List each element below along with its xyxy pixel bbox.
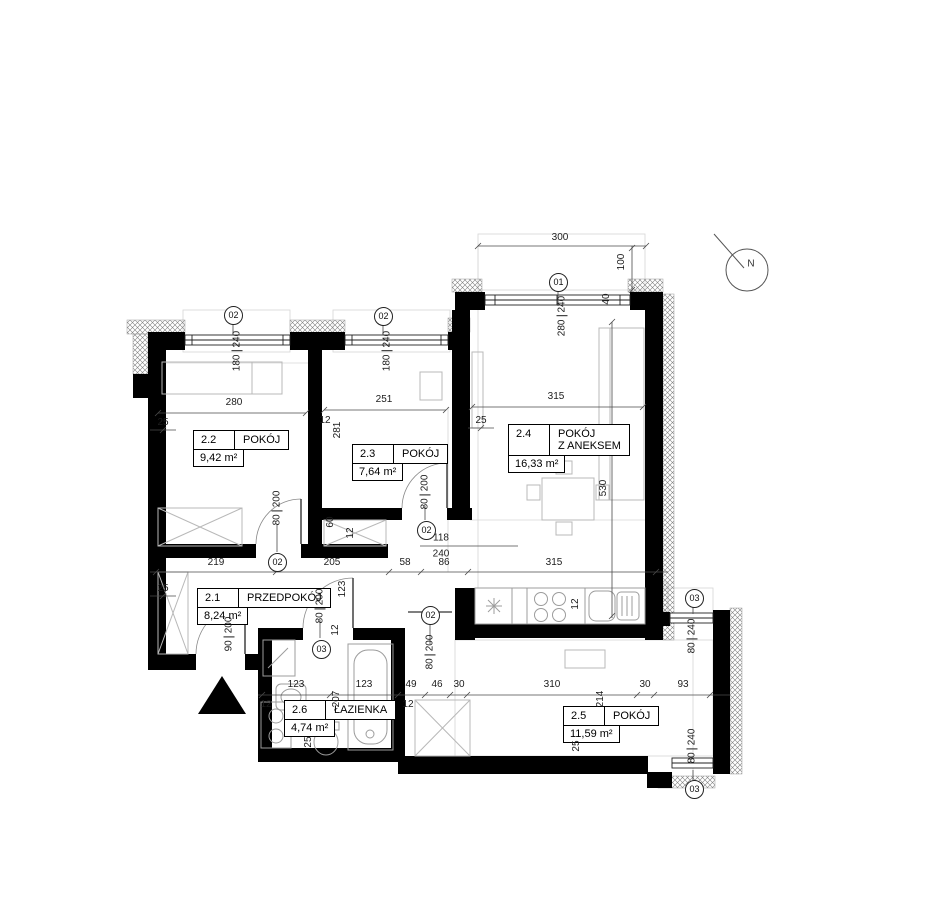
dim-60: 60 <box>326 516 336 527</box>
room-area: 9,42 m² <box>193 450 244 467</box>
dim-281: 281 <box>333 422 343 439</box>
opening-width: 180 <box>232 355 242 372</box>
wardrobe-room-2-5 <box>415 700 470 756</box>
dim-530: 530 <box>599 480 609 497</box>
window-marker-01: 01 <box>549 273 568 292</box>
wardrobe-room-2-2 <box>158 508 242 546</box>
dim-207: 207 <box>332 691 342 708</box>
dim-123: 123 <box>288 680 305 690</box>
dim-219: 219 <box>208 558 225 568</box>
room-number: 2.1 <box>198 589 239 607</box>
room-label-2-3: 2.3POKÓJ 7,64 m² <box>352 444 448 481</box>
room-number: 2.2 <box>194 431 235 449</box>
door-marker-02: 02 <box>421 606 440 625</box>
north-arrow-icon <box>714 234 768 291</box>
room-name: POKÓJ <box>605 707 658 725</box>
floorplan-page: 2.2POKÓJ 9,42 m² 2.3POKÓJ 7,64 m² 2.4 PO… <box>0 0 940 906</box>
dim-12: 12 <box>402 700 413 710</box>
dim-12: 12 <box>260 700 271 710</box>
dim-93: 93 <box>677 680 688 690</box>
door-marker-02: 02 <box>268 553 287 572</box>
door-size-80-200: 80200 <box>272 491 283 526</box>
window-size-80-240: 80240 <box>687 729 698 764</box>
dim-12: 12 <box>319 416 330 426</box>
window-size-280-240: 280240 <box>557 296 568 336</box>
room-area: 16,33 m² <box>508 456 565 473</box>
opening-width: 180 <box>382 355 392 372</box>
room-name: POKÓJZ ANEKSEM <box>550 425 629 455</box>
dim-280: 280 <box>226 398 243 408</box>
window-size-80-240: 80240 <box>687 619 698 654</box>
dim-46: 46 <box>431 680 442 690</box>
opening-width: 80 <box>687 752 697 763</box>
opening-width: 80 <box>315 612 325 623</box>
entrance-triangle <box>198 676 246 714</box>
room-name: POKÓJ <box>235 431 288 449</box>
opening-width: 80 <box>425 658 435 669</box>
opening-height: 240 <box>232 331 242 348</box>
dim-214: 214 <box>596 691 606 708</box>
door-size-90-200: 90200 <box>224 617 235 652</box>
dim-25: 25 <box>475 416 486 426</box>
room-label-2-4: 2.4 POKÓJZ ANEKSEM 16,33 m² <box>508 424 630 473</box>
room-name: POKÓJ <box>394 445 447 463</box>
dim-251: 251 <box>376 395 393 405</box>
door-size-80-200: 80200 <box>420 475 431 510</box>
desk-room-2-3 <box>420 372 442 400</box>
passage-width: 118 <box>433 533 449 544</box>
dim-123: 123 <box>356 680 373 690</box>
opening-height: 200 <box>315 589 325 606</box>
dim-49: 49 <box>405 680 416 690</box>
dim-25: 25 <box>572 740 582 751</box>
window-marker-03: 03 <box>685 780 704 799</box>
room-area: 7,64 m² <box>352 464 403 481</box>
dim-25: 25 <box>304 736 314 747</box>
dim-12: 12 <box>346 527 356 538</box>
opening-height: 200 <box>272 491 282 508</box>
window-size-180-240: 180240 <box>232 331 243 371</box>
sofa-room-2-4 <box>599 328 644 500</box>
opening-height: 240 <box>687 619 697 636</box>
north-label: N <box>747 259 754 270</box>
dim-25: 25 <box>157 418 168 428</box>
dim-30: 30 <box>639 680 650 690</box>
room-label-2-1: 2.1PRZEDPOKÓJ 8,24 m² <box>197 588 331 625</box>
room-number: 2.5 <box>564 707 605 725</box>
door-size-80-200: 80200 <box>425 635 436 670</box>
dim-25: 25 <box>157 584 168 594</box>
dim-205: 205 <box>324 558 341 568</box>
window-marker-02: 02 <box>374 307 393 326</box>
door-marker-03: 03 <box>312 640 331 659</box>
opening-width: 80 <box>420 498 430 509</box>
desk-corridor <box>565 650 605 668</box>
room-label-2-2: 2.2POKÓJ 9,42 m² <box>193 430 289 467</box>
sink-icon <box>589 591 639 621</box>
opening-height: 240 <box>382 331 392 348</box>
dim-100: 100 <box>617 254 627 271</box>
dim-40: 40 <box>602 293 612 304</box>
room-name-line2: Z ANEKSEM <box>558 440 621 452</box>
room-number: 2.6 <box>285 701 326 719</box>
fridge-icon <box>486 598 502 614</box>
opening-width: 80 <box>687 642 697 653</box>
opening-width: 90 <box>224 640 234 651</box>
dim-58: 58 <box>399 558 410 568</box>
room-area: 4,74 m² <box>284 720 335 737</box>
opening-height: 240 <box>687 729 697 746</box>
opening-height: 200 <box>224 617 234 634</box>
window-marker-03: 03 <box>685 589 704 608</box>
opening-width: 280 <box>557 320 567 337</box>
dim-123: 123 <box>338 581 348 598</box>
opening-height: 200 <box>425 635 435 652</box>
dim-86: 86 <box>438 558 449 568</box>
dim-310: 310 <box>544 680 561 690</box>
window-size-180-240: 180240 <box>382 331 393 371</box>
room-label-2-5: 2.5POKÓJ 11,59 m² <box>563 706 659 743</box>
dim-12: 12 <box>571 598 581 609</box>
room-number: 2.3 <box>353 445 394 463</box>
dim-315: 315 <box>546 558 563 568</box>
door-size-80-200: 80200 <box>315 589 326 624</box>
opening-height: 240 <box>557 296 567 313</box>
room-number: 2.4 <box>509 425 550 455</box>
window-marker-02: 02 <box>224 306 243 325</box>
dim-300: 300 <box>552 233 569 243</box>
opening-height: 200 <box>420 475 430 492</box>
dim-315: 315 <box>548 392 565 402</box>
floorplan-drawing <box>0 0 940 906</box>
opening-width: 80 <box>272 514 282 525</box>
dim-12: 12 <box>331 624 341 635</box>
room-name-line1: POKÓJ <box>558 428 595 440</box>
stove-icon <box>535 593 566 622</box>
dim-30: 30 <box>453 680 464 690</box>
bed-room-2-2 <box>162 362 282 394</box>
